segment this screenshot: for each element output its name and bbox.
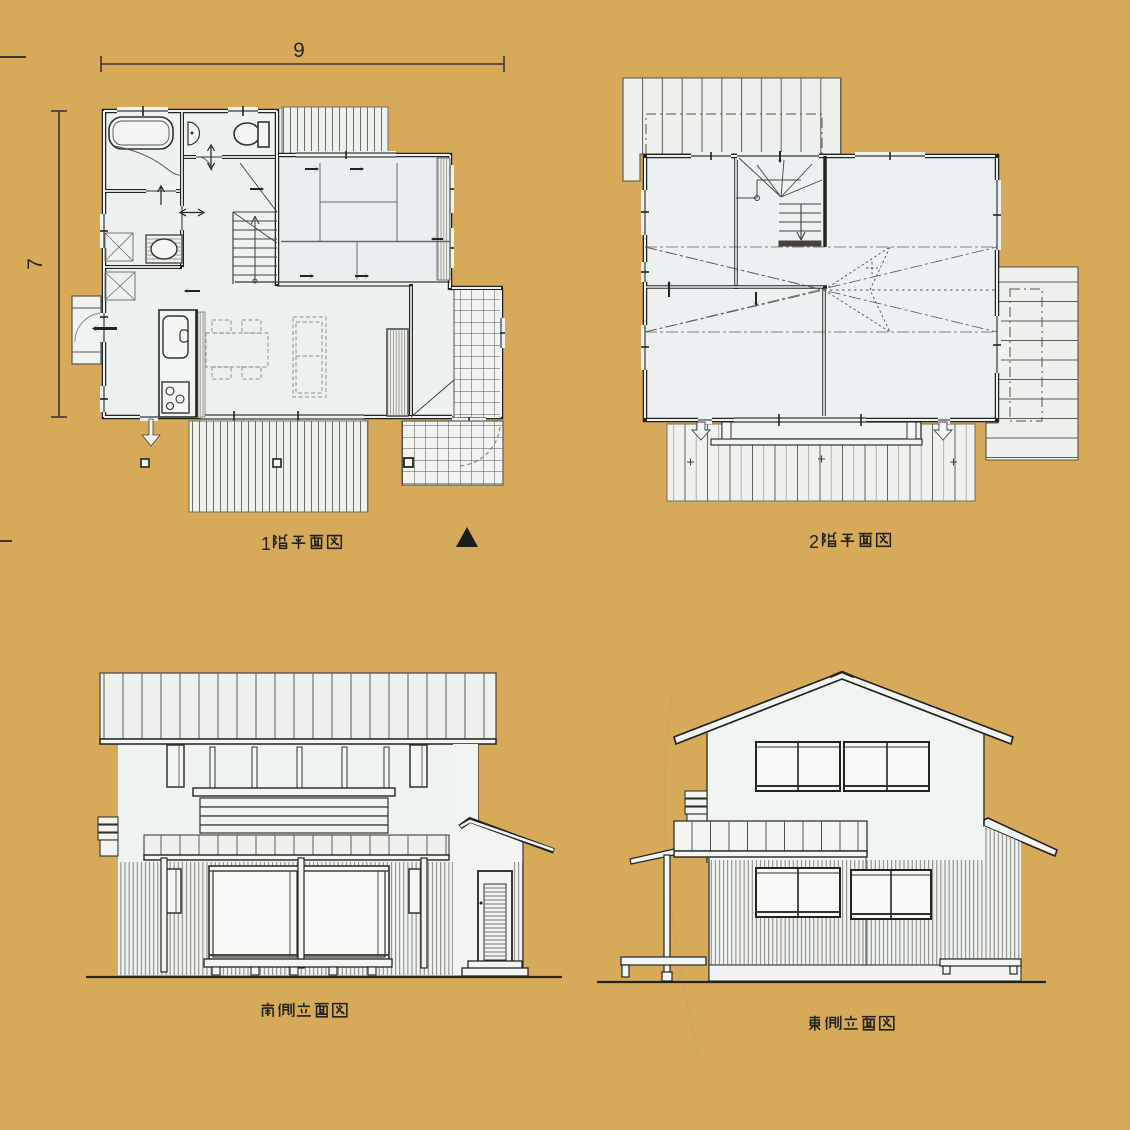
svg-text:7: 7	[24, 258, 47, 270]
svg-text:1: 1	[261, 534, 271, 554]
svg-text:9: 9	[293, 39, 305, 62]
svg-text:2: 2	[809, 532, 819, 552]
